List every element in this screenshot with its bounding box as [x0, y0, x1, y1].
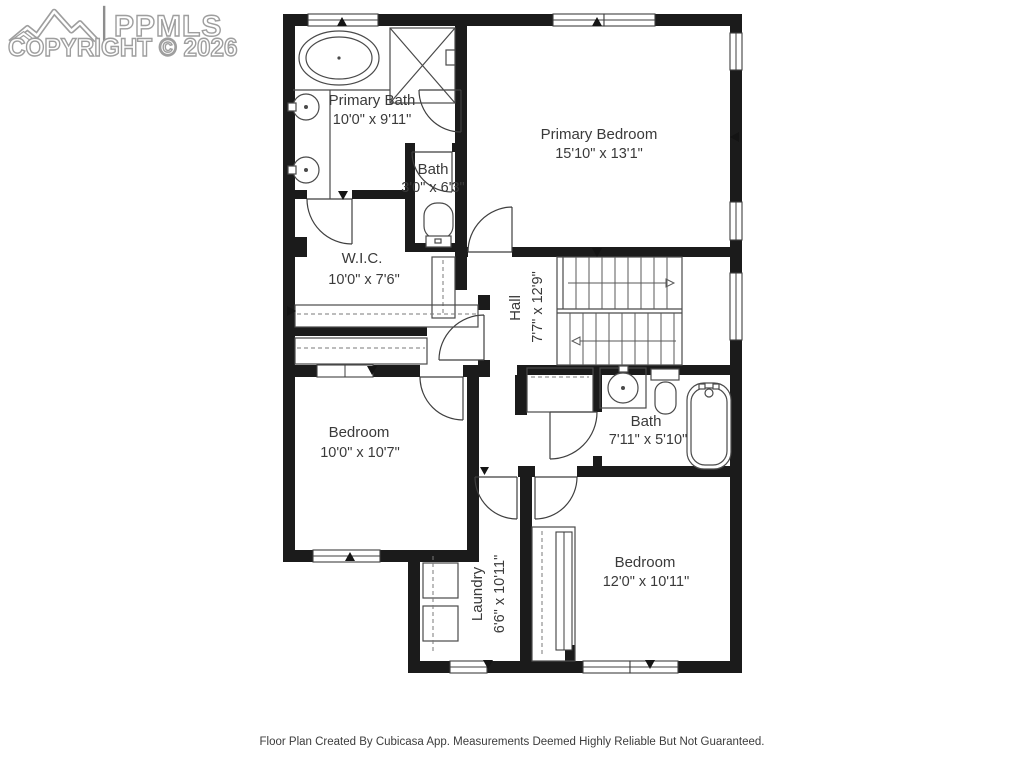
wall-segment [408, 550, 420, 673]
wall-segment [352, 190, 405, 199]
window [630, 661, 678, 673]
window [730, 202, 742, 240]
window [450, 661, 487, 673]
wall-segment [283, 190, 307, 199]
wall-segment [730, 14, 742, 673]
watermark: PPMLS COPYRIGHT © 2026 [6, 2, 306, 72]
dryer-icon [423, 606, 458, 641]
faucet-icon [619, 366, 628, 372]
room-label: Bath [418, 161, 449, 178]
wall-segment [405, 143, 415, 252]
sliding-closet-door [317, 365, 373, 377]
door-bedroom-right [535, 477, 577, 519]
window [583, 661, 630, 673]
window [730, 33, 742, 70]
wall-segment [283, 365, 317, 377]
tub-handle [713, 384, 719, 389]
room-label: Primary Bedroom [541, 126, 658, 143]
wall-segment [283, 237, 307, 257]
stair-arrow-down-head [572, 337, 580, 345]
washer-icon [423, 563, 458, 598]
room-label: Bath [631, 413, 662, 430]
bathtub-drain [337, 56, 340, 59]
wall-segment [452, 143, 467, 152]
floor-plan-svg: Primary Bath 10'0" x 9'11" Bath 3'0" x 6… [0, 0, 1024, 768]
sink-drain [304, 168, 308, 172]
watermark-copyright: COPYRIGHT © 2026 [8, 34, 237, 63]
room-dim: 10'0" x 10'7" [320, 445, 400, 461]
room-label: W.I.C. [342, 250, 383, 267]
wall-segment [283, 550, 479, 562]
wall-segment [373, 365, 420, 377]
closet-strip [295, 305, 478, 327]
stair-treads-lower [570, 313, 674, 365]
room-label: Laundry [469, 566, 486, 621]
sink-drain [304, 105, 308, 109]
room-dim: 15'10" x 13'1" [555, 146, 643, 162]
toilet-flush [435, 239, 441, 243]
room-dim: 12'0" x 10'11" [603, 574, 690, 590]
closet-strip [295, 338, 427, 364]
room-dim: 7'11" x 5'10" [609, 432, 687, 448]
room-label: Hall [507, 295, 524, 321]
footer-disclaimer: Floor Plan Created By Cubicasa App. Meas… [0, 736, 1024, 748]
bath-upper-fixtures [424, 203, 453, 247]
wall-segment [593, 375, 602, 412]
door-bath-middle [550, 412, 597, 459]
wall-segment [517, 365, 742, 375]
wall-segment [478, 295, 490, 310]
wall-segment [515, 375, 527, 415]
window [730, 273, 742, 340]
wall-segment [455, 143, 467, 290]
wall-segment [467, 466, 475, 477]
wall-segment [405, 143, 412, 152]
door-laundry [475, 477, 517, 519]
room-dim: 7'7" x 12'9" [530, 271, 546, 342]
wall-segment [512, 247, 742, 257]
room-dim: 3'0" x 6'3" [401, 180, 464, 196]
room-label: Primary Bath [329, 92, 416, 109]
wall-segment [455, 247, 468, 257]
wall-segment [593, 456, 602, 466]
door-wic [307, 199, 352, 244]
floor-plan-page: PPMLS COPYRIGHT © 2026 [0, 0, 1024, 768]
sliding-closet-door [556, 532, 572, 650]
toilet-icon [655, 382, 676, 414]
wall-segment [288, 327, 427, 336]
door-primary-bedroom [468, 207, 512, 252]
room-dim: 10'0" x 7'6" [328, 272, 399, 288]
faucet-icon [288, 166, 296, 174]
window [604, 14, 655, 26]
toilet-icon [424, 203, 453, 239]
tub-handle [699, 384, 705, 389]
room-dim: 6'6" x 10'11" [492, 555, 508, 633]
door-hall-closet [439, 315, 484, 360]
toilet-tank [651, 369, 679, 380]
wall-segment [463, 365, 490, 377]
laundry-fixtures [423, 556, 458, 653]
tub-faucet-icon [705, 389, 713, 397]
staircase [557, 257, 682, 365]
shower-valve-icon [446, 50, 455, 65]
faucet-icon [288, 103, 296, 111]
bath-middle-fixtures [600, 366, 731, 469]
sink-drain [621, 386, 625, 390]
door-bedroom-left [420, 377, 463, 420]
hall-closet [432, 257, 455, 318]
room-label: Bedroom [329, 424, 390, 441]
marker-triangle [480, 467, 489, 475]
wall-segment [283, 14, 295, 562]
room-dim: 10'0" x 9'11" [333, 112, 411, 128]
room-label: Bedroom [615, 554, 676, 571]
wall-segment [520, 466, 532, 673]
